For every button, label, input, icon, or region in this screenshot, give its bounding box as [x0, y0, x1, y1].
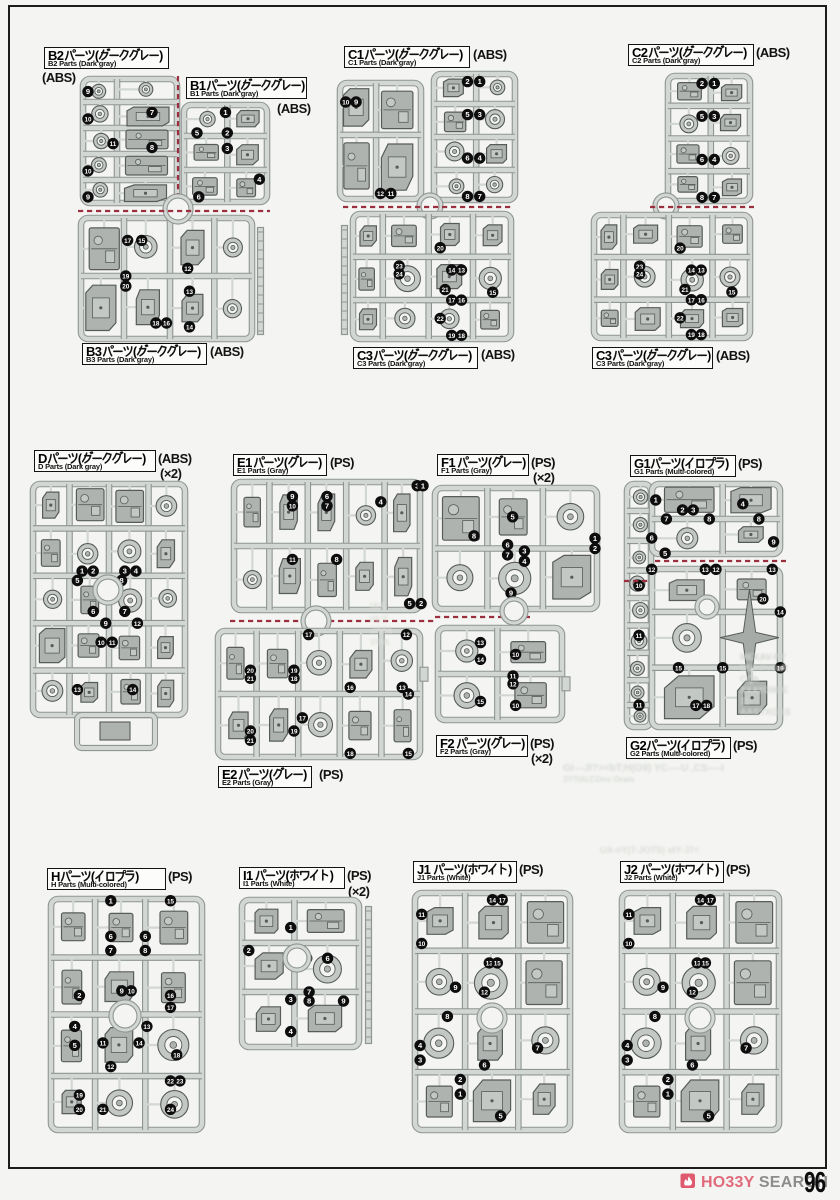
svg-text:6: 6 [690, 1061, 694, 1070]
svg-text:6: 6 [143, 932, 147, 941]
svg-text:10: 10 [289, 503, 297, 510]
svg-text:11: 11 [418, 912, 425, 919]
svg-text:7: 7 [150, 108, 154, 117]
svg-text:14: 14 [477, 657, 485, 664]
svg-text:13: 13 [702, 567, 710, 574]
svg-text:3: 3 [418, 1056, 422, 1065]
svg-text:17: 17 [124, 238, 132, 245]
svg-text:2: 2 [666, 1075, 670, 1084]
svg-text:7: 7 [712, 193, 716, 202]
svg-text:21: 21 [442, 287, 450, 294]
svg-text:3: 3 [478, 110, 482, 119]
svg-text:18: 18 [173, 1052, 181, 1059]
svg-text:14: 14 [777, 610, 785, 617]
svg-text:9: 9 [771, 537, 775, 546]
svg-text:16: 16 [167, 993, 175, 1000]
svg-text:10: 10 [342, 100, 350, 107]
svg-text:6: 6 [325, 492, 329, 501]
svg-text:15: 15 [728, 290, 736, 297]
svg-text:13: 13 [74, 687, 82, 694]
svg-text:): ) [522, 456, 526, 470]
svg-text:11: 11 [636, 633, 643, 640]
svg-text:19: 19 [688, 332, 696, 339]
svg-text:14: 14 [405, 692, 413, 699]
svg-text:11: 11 [289, 557, 296, 564]
svg-text:12: 12 [377, 191, 385, 198]
svg-text:22: 22 [167, 1079, 175, 1086]
svg-text:21: 21 [681, 287, 689, 294]
svg-text:15: 15 [494, 961, 502, 968]
svg-text:9: 9 [104, 619, 108, 628]
svg-text:18: 18 [703, 703, 711, 710]
svg-text:): ) [159, 49, 163, 63]
svg-text:8: 8 [334, 555, 338, 564]
svg-text:2: 2 [225, 129, 229, 138]
svg-text:): ) [142, 452, 146, 466]
svg-text:6: 6 [197, 192, 201, 201]
svg-text:): ) [743, 46, 747, 60]
svg-text:): ) [468, 349, 472, 363]
svg-text:10: 10 [128, 988, 136, 995]
svg-text:20: 20 [759, 596, 767, 603]
svg-text:9: 9 [86, 193, 90, 202]
svg-text:9: 9 [120, 986, 124, 995]
svg-text:21: 21 [99, 1107, 107, 1114]
svg-text:19: 19 [448, 333, 456, 340]
svg-text:6: 6 [505, 540, 509, 549]
svg-text:3: 3 [691, 506, 695, 515]
svg-text:3: 3 [289, 995, 293, 1004]
svg-text:11: 11 [636, 703, 643, 710]
svg-text:16: 16 [458, 298, 466, 305]
svg-text:8: 8 [307, 997, 311, 1006]
svg-text:14: 14 [186, 324, 194, 331]
svg-text:15: 15 [477, 699, 485, 706]
svg-text:20: 20 [122, 284, 130, 291]
svg-text:10: 10 [512, 703, 520, 710]
svg-text:14: 14 [697, 897, 705, 904]
svg-text:14: 14 [136, 1041, 144, 1048]
svg-text:17: 17 [688, 297, 696, 304]
svg-text:15: 15 [719, 665, 727, 672]
svg-text:2: 2 [247, 946, 251, 955]
svg-text:): ) [303, 768, 307, 782]
svg-text:15: 15 [138, 238, 146, 245]
svg-text:17: 17 [692, 703, 700, 710]
svg-text:7: 7 [478, 192, 482, 201]
svg-text:8: 8 [757, 515, 761, 524]
svg-text:10: 10 [635, 583, 643, 590]
svg-text:8: 8 [653, 1012, 657, 1021]
svg-text:9: 9 [341, 997, 345, 1006]
svg-text:10: 10 [84, 117, 92, 124]
svg-text:): ) [521, 737, 525, 751]
svg-text:): ) [715, 863, 719, 877]
svg-text:8: 8 [143, 946, 147, 955]
svg-text:13: 13 [477, 640, 485, 647]
svg-text:8: 8 [472, 531, 476, 540]
svg-text:3: 3 [712, 112, 716, 121]
svg-text:17: 17 [299, 715, 307, 722]
svg-text:15: 15 [675, 665, 683, 672]
svg-text:7: 7 [307, 988, 311, 997]
svg-text:14: 14 [129, 687, 137, 694]
svg-text:12: 12 [481, 990, 489, 997]
svg-text:11: 11 [625, 912, 632, 919]
svg-text:13: 13 [186, 289, 194, 296]
svg-text:2: 2 [77, 991, 81, 1000]
svg-text:12: 12 [712, 567, 720, 574]
svg-text:8: 8 [465, 192, 469, 201]
svg-text:8: 8 [445, 1012, 449, 1021]
svg-text:15: 15 [405, 751, 413, 758]
svg-text:20: 20 [76, 1107, 84, 1114]
svg-text:17: 17 [707, 897, 715, 904]
svg-text:9: 9 [661, 983, 665, 992]
svg-text:11: 11 [388, 191, 395, 198]
svg-text:24: 24 [396, 272, 404, 279]
svg-text:6: 6 [650, 534, 654, 543]
svg-text:12: 12 [134, 621, 142, 628]
svg-text:7: 7 [505, 551, 509, 560]
svg-text:): ) [721, 739, 725, 753]
svg-text:3: 3 [625, 1056, 629, 1065]
svg-text:6: 6 [465, 154, 469, 163]
svg-text:7: 7 [535, 1044, 539, 1053]
svg-text:13: 13 [769, 567, 777, 574]
svg-text:): ) [725, 457, 729, 471]
svg-text:24: 24 [167, 1107, 175, 1114]
svg-text:10: 10 [84, 169, 92, 176]
svg-text:22: 22 [437, 316, 445, 323]
svg-text:2: 2 [458, 1075, 462, 1084]
svg-text:11: 11 [110, 141, 117, 148]
svg-text:14: 14 [688, 268, 696, 275]
svg-text:12: 12 [184, 266, 192, 273]
svg-text:18: 18 [347, 751, 355, 758]
svg-text:6: 6 [91, 607, 95, 616]
svg-text:13: 13 [698, 268, 706, 275]
svg-text:20: 20 [437, 245, 445, 252]
svg-text:10: 10 [98, 640, 106, 647]
svg-text:): ) [330, 869, 334, 883]
svg-text:2: 2 [465, 77, 469, 86]
svg-text:6: 6 [109, 932, 113, 941]
svg-text:7: 7 [325, 501, 329, 510]
svg-text:): ) [135, 870, 139, 884]
svg-text:15: 15 [167, 898, 175, 905]
svg-text:24: 24 [636, 272, 644, 279]
svg-text:): ) [197, 345, 201, 359]
svg-text:17: 17 [167, 1005, 175, 1012]
svg-text:17: 17 [448, 298, 456, 305]
svg-text:9: 9 [453, 983, 457, 992]
svg-text:): ) [318, 456, 322, 470]
svg-text:10: 10 [625, 941, 633, 948]
svg-text:14: 14 [448, 268, 456, 275]
svg-text:21: 21 [247, 676, 255, 683]
svg-text:): ) [707, 349, 711, 363]
svg-text:18: 18 [698, 332, 706, 339]
svg-text:8: 8 [707, 515, 711, 524]
svg-text:13: 13 [458, 268, 466, 275]
svg-text:2: 2 [593, 544, 597, 553]
svg-text:11: 11 [109, 640, 116, 647]
svg-text:): ) [301, 79, 305, 93]
svg-text:6: 6 [700, 155, 704, 164]
svg-text:2: 2 [419, 599, 423, 608]
svg-text:): ) [459, 48, 463, 62]
svg-text:22: 22 [677, 315, 685, 322]
svg-text:8: 8 [700, 193, 704, 202]
svg-text:13: 13 [143, 1024, 151, 1031]
svg-text:16: 16 [698, 297, 706, 304]
svg-text:2: 2 [680, 506, 684, 515]
svg-text:9: 9 [290, 492, 294, 501]
svg-text:18: 18 [152, 321, 160, 328]
svg-text:7: 7 [664, 515, 668, 524]
svg-text:16: 16 [163, 321, 171, 328]
svg-text:18: 18 [458, 333, 466, 340]
svg-text:19: 19 [290, 729, 298, 736]
svg-text:7: 7 [123, 607, 127, 616]
svg-text:3: 3 [522, 547, 526, 556]
svg-text:6: 6 [482, 1061, 486, 1070]
svg-text:12: 12 [107, 1064, 115, 1071]
svg-text:10: 10 [418, 941, 426, 948]
svg-text:19: 19 [76, 1093, 84, 1100]
svg-text:12: 12 [689, 990, 697, 997]
svg-text:3: 3 [225, 144, 229, 153]
svg-text:6: 6 [325, 954, 329, 963]
svg-text:17: 17 [499, 897, 507, 904]
svg-text:7: 7 [744, 1044, 748, 1053]
svg-text:20: 20 [677, 246, 685, 253]
svg-text:2: 2 [700, 79, 704, 88]
svg-text:16: 16 [347, 685, 355, 692]
svg-text:): ) [508, 863, 512, 877]
svg-text:12: 12 [509, 681, 517, 688]
svg-text:21: 21 [247, 738, 255, 745]
svg-text:12: 12 [648, 567, 656, 574]
svg-text:19: 19 [122, 274, 130, 281]
svg-text:23: 23 [176, 1079, 184, 1086]
svg-text:10: 10 [512, 652, 520, 659]
svg-text:9: 9 [354, 98, 358, 107]
svg-text:11: 11 [100, 1041, 107, 1048]
svg-text:8: 8 [150, 143, 154, 152]
svg-text:17: 17 [305, 632, 313, 639]
svg-text:7: 7 [109, 946, 113, 955]
svg-text:18: 18 [290, 676, 298, 683]
svg-text:15: 15 [702, 961, 710, 968]
svg-text:14: 14 [489, 897, 497, 904]
svg-text:15: 15 [489, 290, 497, 297]
svg-text:9: 9 [86, 87, 90, 96]
